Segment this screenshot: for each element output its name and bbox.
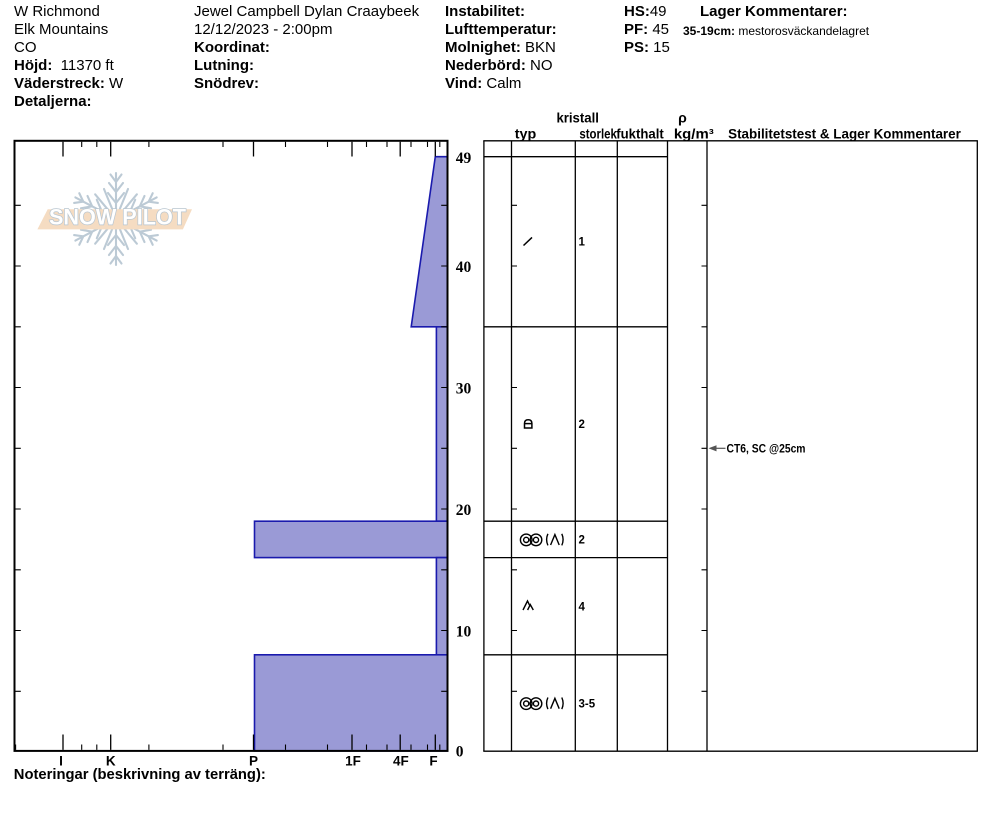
svg-text:storlek: storlek [579,126,617,141]
svg-text:Noteringar (beskrivning av ter: Noteringar (beskrivning av terräng): [14,766,266,783]
svg-text:0: 0 [456,744,464,761]
svg-text:SNOW PILOT: SNOW PILOT [49,205,187,230]
svg-text:49: 49 [456,150,472,167]
svg-text:4F: 4F [393,753,409,768]
svg-text:kristall: kristall [556,110,599,125]
svg-text:1: 1 [579,236,586,248]
svg-text:CT6, SC @25cm: CT6, SC @25cm [727,442,806,456]
svg-text:20: 20 [456,502,472,519]
svg-text:2: 2 [579,534,585,546]
svg-text:F: F [429,753,437,768]
svg-text:typ: typ [515,126,537,141]
svg-text:fukthalt: fukthalt [616,126,664,141]
svg-text:1F: 1F [345,753,361,768]
svg-text:kg/m³: kg/m³ [674,126,714,141]
svg-text:3-5: 3-5 [579,698,596,710]
svg-text:40: 40 [456,259,472,276]
svg-text:4: 4 [579,601,586,613]
svg-text:2: 2 [579,419,585,431]
svg-text:10: 10 [456,624,472,641]
svg-text:Stabilitetstest & Lager Kommen: Stabilitetstest & Lager Kommentarer [728,126,961,141]
svg-text:30: 30 [456,381,472,398]
svg-text:ρ: ρ [678,109,687,125]
